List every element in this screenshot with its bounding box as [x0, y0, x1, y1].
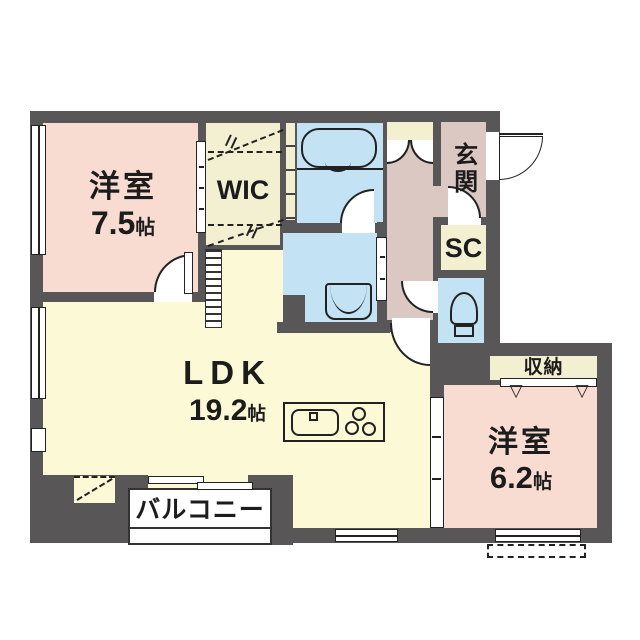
ldk-name: LDK	[183, 356, 272, 391]
window-balcony-pane1	[148, 476, 204, 484]
shoe-closet-label: SC	[441, 228, 486, 268]
window-ldk-bottom	[335, 529, 398, 542]
doorway-bath	[342, 223, 375, 233]
door-leaf-front-door	[499, 133, 543, 135]
sliding-partition-ldk-bedroom2	[430, 397, 444, 528]
window-bedroom1-left	[31, 125, 46, 255]
bedroom2-area: 6.2帖	[490, 462, 552, 495]
ldk-label: LDK 19.2帖	[120, 352, 335, 430]
window-bedroom2-bottom	[495, 529, 581, 542]
bedroom1-area: 7.5帖	[91, 207, 155, 241]
floor-plan: ▽ ▽ 洋室 7.5帖 WIC LDK 19.2帖 玄関 SC 収納 洋室 6.…	[0, 0, 640, 640]
balcony-railing-line	[130, 527, 270, 529]
bedroom2-label: 洋室 6.2帖	[450, 418, 592, 504]
window-balcony-pane2	[197, 482, 253, 490]
wic-label: WIC	[206, 170, 280, 210]
hall-entrance-connector	[433, 186, 441, 217]
hall-upper-storage	[387, 122, 433, 142]
window-ldk-left	[31, 307, 46, 399]
door-arc-front-door	[499, 136, 543, 180]
refrigerator-space	[205, 249, 222, 328]
stove-burner-left	[345, 421, 359, 435]
bedroom1-name: 洋室	[89, 171, 157, 204]
doorway-shoe-closet	[448, 217, 481, 225]
wic-shelf-dash-top	[208, 151, 282, 153]
entrance-label: 玄関	[449, 127, 477, 211]
folding-door-mark-left: ▽	[506, 381, 526, 401]
toilet-icon	[450, 292, 478, 325]
room-ldk-kitchen-nook	[222, 250, 283, 304]
bath-floor-line	[297, 168, 383, 170]
linen-shelf	[286, 123, 295, 220]
balcony-label: バルコニー	[130, 494, 270, 526]
stove-burner-top	[352, 407, 366, 421]
doorway-front-door	[486, 132, 499, 180]
wall-washroom-bottom	[277, 322, 390, 333]
window-ldk-left-small	[31, 428, 46, 452]
eaves-dashed-outline	[487, 544, 586, 558]
stove-burner-right	[362, 422, 376, 436]
toilet-base	[454, 325, 474, 337]
wall-washroom-notch	[283, 295, 305, 322]
bedroom2-name: 洋室	[488, 427, 554, 459]
ldk-area: 19.2帖	[189, 395, 266, 427]
sliding-door-washroom	[376, 237, 387, 301]
door-leaf-bedroom1	[184, 252, 193, 294]
storage-label: 収納	[490, 356, 597, 380]
bedroom1-label: 洋室 7.5帖	[48, 158, 198, 254]
folding-door-mark-right: ▽	[572, 381, 592, 401]
